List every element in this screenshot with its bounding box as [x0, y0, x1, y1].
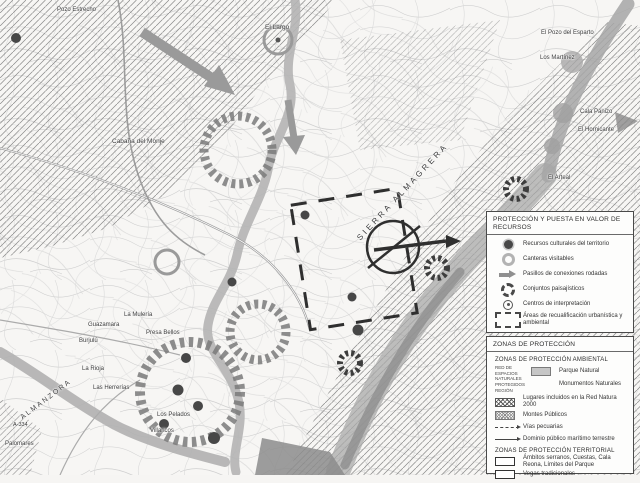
legend-territorial-heading: ZONAS DE PROTECCIÓN TERRITORIAL [493, 445, 629, 455]
legend-item: Ámbitos serranos, Cuestas, Cala Reona, L… [493, 455, 629, 469]
legend-item: Pasillos de conexiones rodadas [493, 267, 629, 282]
dash-arrow-swatch [495, 427, 519, 428]
territorial-items: Ámbitos serranos, Cuestas, Cala Reona, L… [493, 455, 629, 481]
legend-item: Centros de interpretación [493, 297, 629, 312]
swatch-cell [493, 439, 523, 440]
legend-item-label: Centros de interpretación [523, 301, 590, 308]
icon-cell [493, 312, 523, 328]
icon-cell [493, 253, 523, 266]
ambiental-items: Lugares incluidos en la Red Natura 2000M… [493, 395, 629, 445]
gray-ring-icon [502, 253, 515, 266]
crosshatch-swatch [495, 398, 515, 407]
legend-item-label: Dominio público marítimo terrestre [523, 436, 615, 443]
gray-swatch [531, 367, 551, 376]
arrow-icon [499, 270, 517, 279]
legend-item: Áreas de recualificación urbanística y a… [493, 312, 629, 328]
icon-cell [493, 240, 523, 249]
filled-circle-icon [504, 240, 513, 249]
legend-item: Montes Públicos [493, 409, 629, 421]
legend-item-label: Parque Natural [559, 368, 599, 375]
line-arrow-swatch [495, 439, 519, 440]
legend-item: Dominio público marítimo terrestre [493, 433, 629, 445]
icon-cell [493, 270, 523, 279]
swatch-cell [493, 411, 523, 420]
crosshatch2-swatch [495, 411, 515, 420]
legend-zonas: ZONAS DE PROTECCIÓN ZONAS DE PROTECCIÓN … [486, 336, 634, 474]
dashed-rect-icon [495, 312, 521, 328]
outline-swatch [495, 457, 515, 466]
enp-block: RED DEESPACIOSNATURALESPROTEGIDOSREGIÓN … [495, 365, 629, 393]
legend-recursos-items: Recursos culturales del territorioCanter… [487, 235, 633, 330]
legend-item-label: Monumentos Naturales [559, 381, 621, 388]
legend-item-label: Montes Públicos [523, 412, 567, 419]
legend-item: Lugares incluidos en la Red Natura 2000 [493, 395, 629, 409]
legend-item-label: Lugares incluidos en la Red Natura 2000 [523, 395, 629, 409]
legend-item-label: Áreas de recualificación urbanística y a… [523, 313, 629, 327]
legend-item: Canteras visitables [493, 252, 629, 267]
swatch-cell [493, 427, 523, 428]
legend-item: Monumentos Naturales [529, 378, 629, 391]
icon-cell [493, 283, 523, 297]
enp-label-line: REGIÓN [495, 388, 529, 394]
legend-item-label: Canteras visitables [523, 256, 574, 263]
icon-cell [493, 300, 523, 310]
swatch-cell [493, 457, 523, 466]
circle-dot-icon [503, 300, 513, 310]
legend-item: Parque Natural [529, 365, 629, 378]
swatch-cell [529, 367, 559, 376]
dashed-ring-icon [501, 283, 515, 297]
legend-item-label: Conjuntos paisajísticos [523, 286, 584, 293]
legend-zonas-title: ZONAS DE PROTECCIÓN [487, 337, 633, 352]
legend-ambiental-heading: ZONAS DE PROTECCIÓN AMBIENTAL [493, 354, 629, 364]
legend-item: Vías pecuarias [493, 421, 629, 433]
enp-label-line: PROTEGIDOS [495, 382, 529, 388]
legend-item: Conjuntos paisajísticos [493, 282, 629, 297]
swatch-cell [529, 380, 559, 389]
enp-label: RED DEESPACIOSNATURALESPROTEGIDOSREGIÓN [495, 365, 529, 393]
legend-item-label: Vías pecuarias [523, 424, 563, 431]
legend-item-label: Recursos culturales del territorio [523, 241, 609, 248]
legend-item-label: Ámbitos serranos, Cuestas, Cala Reona, L… [523, 455, 629, 469]
legend-item-label: Pasillos de conexiones rodadas [523, 271, 607, 278]
legend-item: Recursos culturales del territorio [493, 237, 629, 252]
swatch-cell [493, 398, 523, 407]
legend-recursos: PROTECCIÓN Y PUESTA EN VALOR DE RECURSOS… [486, 211, 634, 333]
legend-recursos-title: PROTECCIÓN Y PUESTA EN VALOR DE RECURSOS [487, 212, 633, 235]
enp-items: Parque NaturalMonumentos Naturales [529, 365, 629, 391]
